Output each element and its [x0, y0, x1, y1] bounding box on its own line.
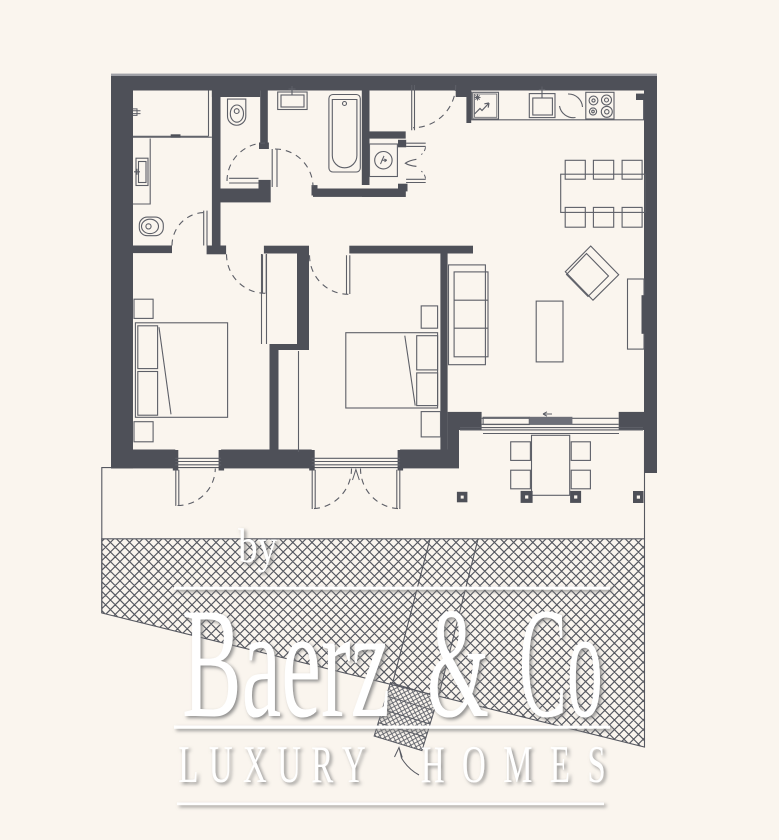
svg-text:Baerz: Baerz: [182, 577, 390, 751]
svg-text:by: by: [238, 518, 277, 573]
svg-text:Co: Co: [519, 577, 603, 751]
svg-text:&: &: [427, 577, 489, 751]
